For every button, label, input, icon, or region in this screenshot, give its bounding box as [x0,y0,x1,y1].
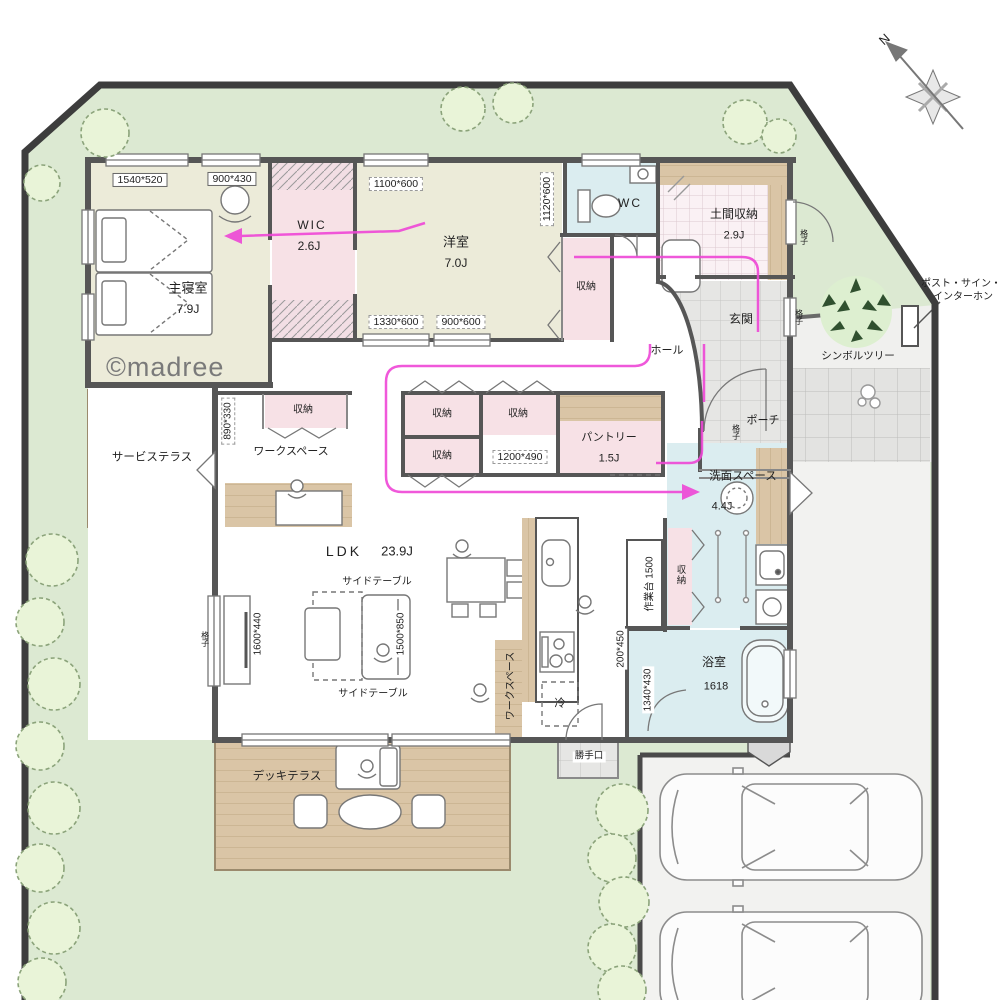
dim-1100-600: 1100*600 [369,177,423,191]
dim-1120-600: 1120*600 [540,172,554,226]
pantry-floor [560,421,663,475]
dim-200-450: 200*450 [615,628,627,669]
window [784,650,796,698]
room-size-pantry: 1.5J [599,453,620,466]
room-size-doma-storage: 2.9J [724,230,745,243]
room-label-master-bedroom: 主寝室 [168,282,207,297]
room-size-master-bedroom: 7.9J [177,303,200,317]
room-label-doma-storage: 土間収納 [710,208,758,222]
window [363,334,429,346]
label-symbol-tree: シンボルツリー [821,350,895,362]
round-table [221,186,249,214]
room-label-back-door: 勝手口 [573,752,606,763]
room-label-wc: WC [618,197,642,211]
toilet-bowl [592,195,620,217]
window [202,154,260,166]
armchair [305,608,340,660]
room-label-storage-c: 収納 [432,450,452,462]
window [208,596,220,686]
room-label-porch: ポーチ [747,415,780,428]
dim-1340-430: 1340*430 [642,667,654,714]
room-label-deck-terrace: デッキテラス [253,770,322,783]
room-label-western-room: 洋室 [443,236,469,251]
room-size-wic: 2.6J [298,240,321,254]
room-label-service-terrace: サービステラス [112,451,192,464]
room-label-washroom-closet: 収納 [674,565,685,586]
room-label-workspace-north: ワークスペース [253,446,328,459]
label-refrigerator: 冷 [555,698,566,711]
window [434,334,490,346]
symbol-tree [820,276,892,348]
annotation-lattice: 格子 [731,424,740,440]
room-label-storage-b: 収納 [508,408,528,420]
room-size-bathroom: 1618 [704,681,728,694]
room-label-ldk: LDK [326,543,362,559]
annotation-lattice: 格子 [200,631,209,647]
window [82,294,94,340]
dim-1500-850: 1500*850 [395,611,407,658]
annotation-lattice: 格子 [799,229,808,245]
label-side-table-top: サイドテーブル [340,576,413,588]
label-side-table-bottom: サイドテーブル [336,688,409,700]
window [392,734,510,746]
washing-machine [756,590,788,624]
room-size-washroom: 4.4J [712,501,733,514]
room-label-genkan: 玄関 [729,313,753,327]
label-post-sign-2: インターホン [933,291,993,303]
approach-tiles [793,368,930,462]
deck-seat [294,795,327,828]
label-post-sign-1: ポスト・サイン・ [921,278,1000,290]
compass [886,42,963,129]
car [660,906,922,1000]
deck-table [339,795,401,829]
dim-900-430: 900*430 [207,172,256,186]
dim-900-600: 900*600 [436,315,485,329]
room-label-closet: 収納 [576,281,596,293]
dim-1600-440: 1600*440 [252,611,264,658]
washroom-counter [756,448,790,544]
dining-table [447,558,505,602]
room-label-ws-closet: 収納 [293,404,313,416]
window [242,734,388,746]
room-label-pantry: パントリー [581,432,637,445]
room-size-western-room: 7.0J [445,257,468,271]
toilet-tank [578,190,590,222]
annotation-lattice: 格子 [794,309,803,325]
room-label-bathroom: 浴室 [702,656,726,670]
dim-890-330: 890*330 [221,397,235,444]
deck-seat [412,795,445,828]
window [106,154,188,166]
room-label-washroom: 洗面スペース [709,470,777,483]
room-label-workspace-south: ワークスペース [505,652,517,721]
window [582,154,640,166]
window [364,154,428,166]
label-work-counter: 作業台 1500 [644,556,656,611]
room-size-ldk: 23.9J [381,545,413,560]
room-label-hall: ホール [651,345,684,358]
car [660,768,922,886]
floor-plan: 主寝室 7.9J WIC 2.6J 洋室 7.0J WC 収納 土間収納 2.9… [0,0,1000,1000]
dim-1540-520: 1540*520 [113,173,168,187]
dim-1330-600: 1330*600 [369,315,424,329]
window [82,210,94,264]
pantry-shelf [560,395,663,421]
floor-plan-drawing [0,0,1000,1000]
desk [276,491,342,525]
room-label-storage-a: 収納 [432,408,452,420]
watermark: ©madree [106,352,224,383]
room-label-wic: WIC [297,219,326,233]
dim-1200-490: 1200*490 [493,450,548,464]
